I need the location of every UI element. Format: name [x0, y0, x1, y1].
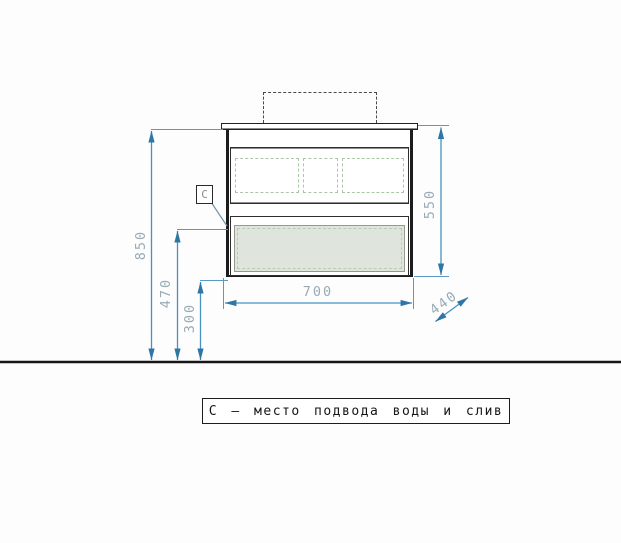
c-marker-label: C [201, 188, 208, 201]
dimension-550-label: 550 [422, 189, 438, 219]
dimension-850-label: 850 [133, 230, 149, 260]
drawing-lines-layer [0, 0, 621, 543]
legend-text: С — место подвода воды и слив [209, 404, 503, 419]
c-marker-leader [211, 202, 227, 226]
dimension-300-label: 300 [182, 303, 198, 333]
dimension-lines [152, 128, 469, 361]
technical-drawing-canvas: C 850 470 300 550 700 440 С — место подв… [0, 0, 621, 543]
dimension-700-label: 700 [303, 284, 333, 300]
legend-box: С — место подвода воды и слив [202, 398, 510, 424]
c-marker-box: C [196, 185, 213, 204]
dimension-470-label: 470 [158, 278, 174, 308]
extension-lines [151, 126, 449, 310]
